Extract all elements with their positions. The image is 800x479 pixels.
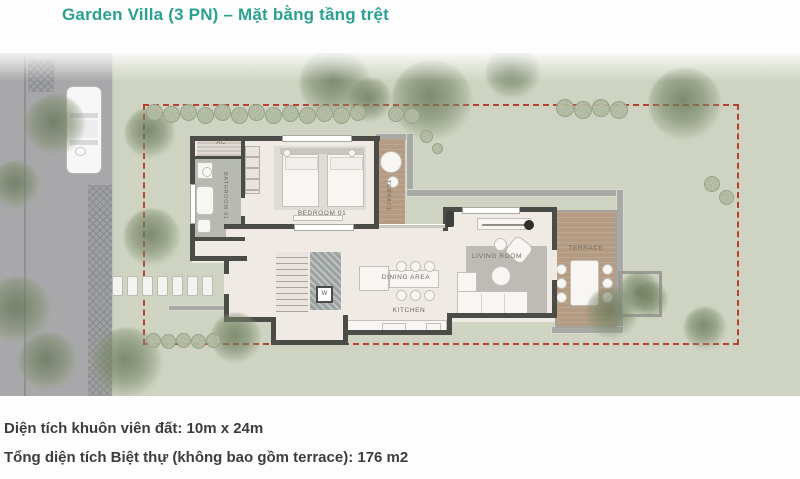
bush — [420, 130, 433, 143]
bathroom-vanity — [197, 162, 213, 179]
outdoor-chair — [556, 264, 567, 275]
bush — [265, 107, 282, 124]
bedside-lamp — [348, 149, 356, 157]
dining-chair — [410, 290, 421, 301]
top-fade — [0, 53, 800, 81]
planter-tree — [619, 272, 661, 314]
outdoor-chair — [556, 292, 567, 303]
washer-label: W — [318, 291, 331, 297]
tree — [684, 307, 726, 349]
bush — [231, 107, 248, 124]
outdoor-chair — [602, 264, 613, 275]
car-detail — [75, 147, 86, 156]
room-label-kitchen: KITCHEN — [384, 307, 434, 314]
bush — [163, 106, 180, 123]
room-label-bedroom: BEDROOM 01 — [287, 210, 357, 217]
room-label-ac: AC — [207, 140, 235, 146]
tv — [482, 224, 528, 226]
villa-area-text: Tổng diện tích Biệt thự (không bao gồm t… — [4, 449, 408, 466]
bush — [214, 104, 231, 121]
bush — [146, 333, 161, 348]
staircase — [276, 252, 308, 312]
wall — [192, 237, 245, 241]
bush — [191, 334, 206, 349]
wall — [190, 256, 247, 261]
room-label-dining: DINING AREA — [374, 274, 438, 281]
wall — [447, 315, 452, 335]
bathtub — [196, 186, 214, 215]
bush — [316, 105, 333, 122]
sofa-cushion-line — [504, 294, 505, 314]
bush — [704, 176, 720, 192]
bed — [282, 154, 319, 207]
bush — [180, 104, 197, 121]
bush — [350, 105, 366, 121]
tree — [25, 95, 85, 155]
bed-pillow — [285, 157, 318, 170]
window — [282, 135, 352, 142]
sliding-window — [379, 224, 445, 228]
coffee-table — [491, 266, 511, 286]
paver-stone — [127, 276, 138, 296]
bedside-lamp — [283, 149, 291, 157]
paver-stone — [157, 276, 168, 296]
dining-chair — [410, 261, 421, 272]
bush — [719, 190, 734, 205]
bush — [161, 334, 176, 349]
bed-pillow — [330, 157, 363, 170]
toilet — [197, 219, 211, 233]
wall — [348, 330, 452, 335]
bush — [556, 99, 574, 117]
bush — [574, 101, 592, 119]
paver-stone — [112, 276, 123, 296]
yard-wall — [406, 133, 414, 195]
paver-stone — [142, 276, 153, 296]
door-leaf — [446, 211, 454, 227]
window — [294, 224, 354, 231]
bush — [610, 101, 628, 119]
tv-console — [477, 218, 531, 230]
wall — [374, 136, 379, 229]
bush — [146, 104, 163, 121]
wall — [271, 340, 348, 345]
tree — [124, 209, 180, 265]
bush — [388, 106, 404, 122]
bush — [248, 104, 265, 121]
room-label-terrace-right: TERRACE — [556, 245, 616, 252]
page-title: Garden Villa (3 PN) – Mặt bằng tầng trệt — [62, 5, 389, 25]
wall — [447, 313, 557, 318]
paver-stone — [187, 276, 198, 296]
paver-stone — [172, 276, 183, 296]
bush — [176, 333, 191, 348]
bush — [282, 105, 299, 122]
tree — [19, 333, 77, 391]
speaker — [524, 220, 534, 230]
entry-door-gap — [224, 274, 230, 294]
garden-wall-stub — [168, 305, 228, 311]
window — [190, 184, 196, 224]
room-label-living: LIVING ROOM — [462, 253, 532, 260]
terrace-door-gap — [552, 250, 557, 280]
bush — [299, 107, 316, 124]
bedroom-door-gap — [241, 198, 246, 216]
bush — [197, 107, 214, 124]
bush — [404, 108, 420, 124]
bush — [206, 333, 221, 348]
sofa-cushion-line — [481, 294, 482, 314]
yard-wall — [406, 189, 624, 197]
dining-chair — [424, 290, 435, 301]
dining-chair — [396, 261, 407, 272]
window — [462, 207, 520, 214]
bush — [432, 143, 443, 154]
bush — [333, 107, 350, 124]
lounge-chair — [380, 151, 402, 173]
wall — [192, 156, 245, 159]
dining-chair — [424, 261, 435, 272]
bed — [327, 154, 364, 207]
site-plan: W — [0, 53, 800, 396]
room-label-bathroom: BATHROOM 01 — [222, 165, 228, 227]
bush — [592, 99, 610, 117]
dining-chair — [396, 290, 407, 301]
sink-basin — [202, 167, 212, 177]
room-label-terrace-upper: TERRACE — [385, 171, 391, 221]
paver-stone — [202, 276, 213, 296]
washer-box: W — [316, 286, 333, 303]
closet — [245, 146, 260, 194]
site-area-text: Diện tích khuôn viên đất: 10m x 24m — [4, 420, 263, 437]
outdoor-chair — [556, 278, 567, 289]
slide: Garden Villa (3 PN) – Mặt bằng tầng trệt — [0, 0, 800, 479]
